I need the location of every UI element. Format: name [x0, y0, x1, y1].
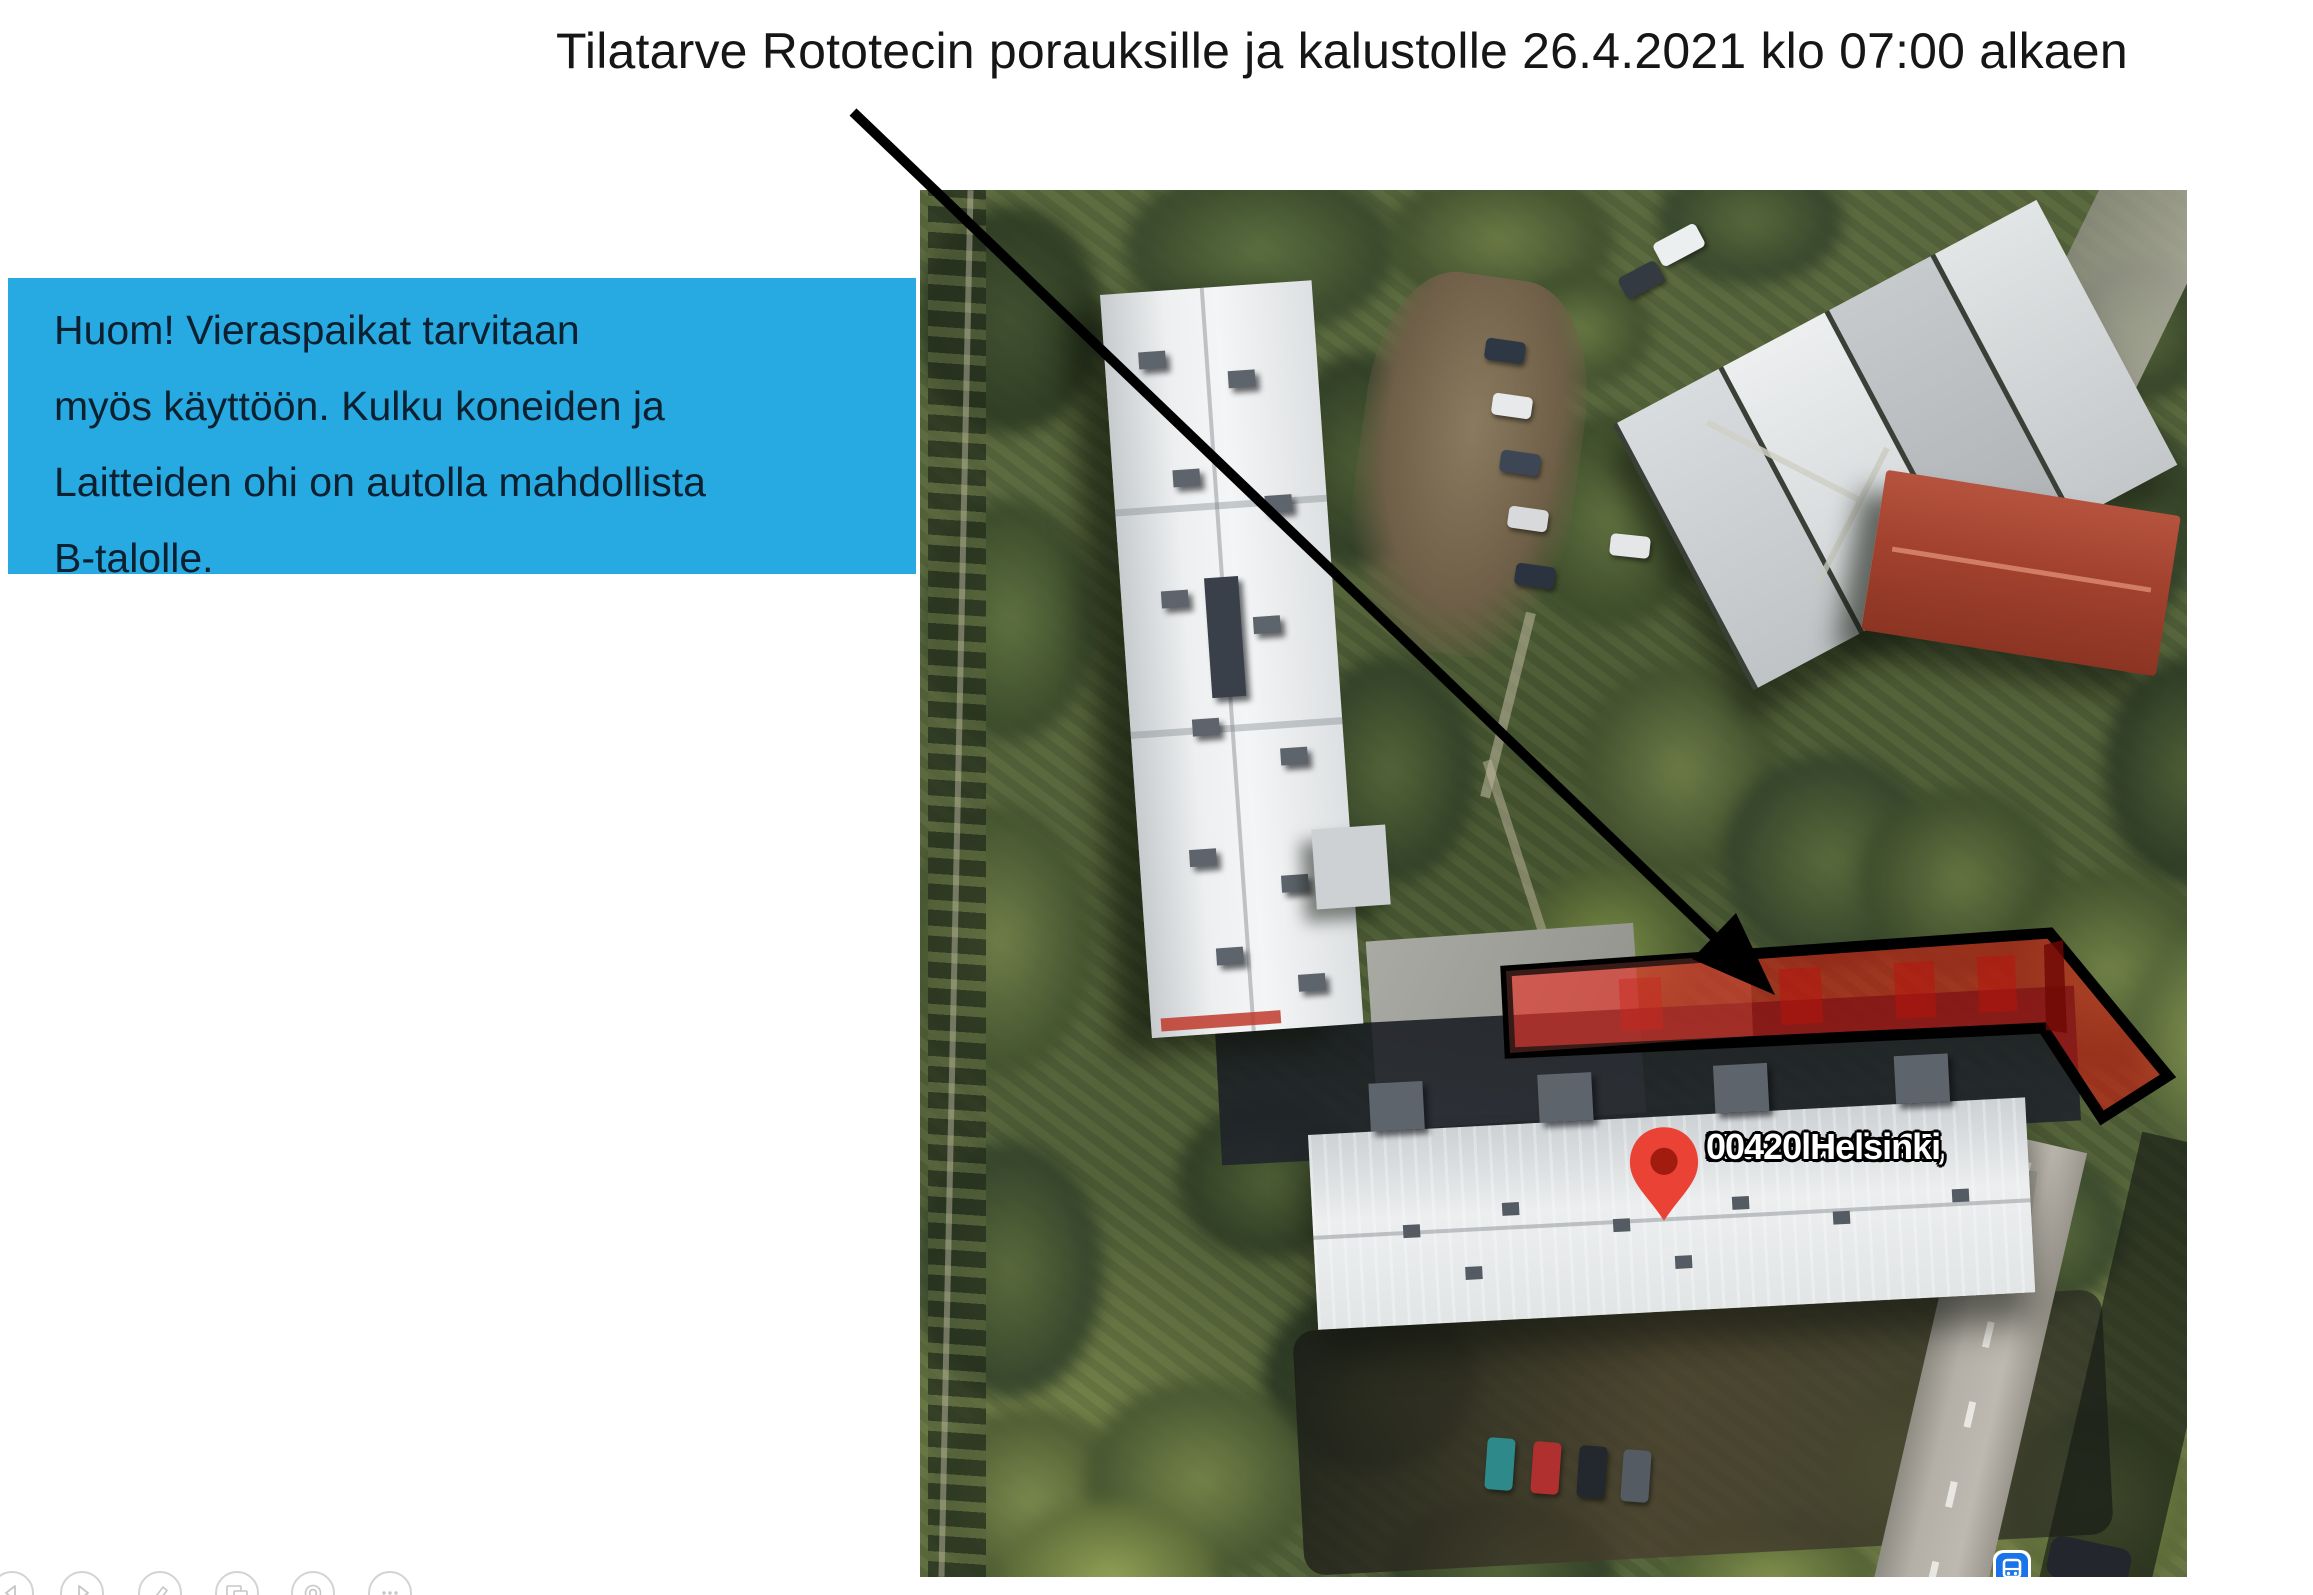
pin-label-line2: 00420 Helsinki	[1706, 1124, 1940, 1170]
slide-canvas: Tilatarve Rototecin porauksille ja kalus…	[0, 0, 2313, 1595]
previous-slide-icon	[0, 1581, 24, 1595]
pen-icon	[148, 1581, 172, 1595]
pen-tools-button[interactable]	[138, 1571, 182, 1595]
next-slide-button[interactable]	[60, 1571, 104, 1595]
note-line: B-talolle.	[54, 520, 906, 596]
display-settings-button[interactable]	[215, 1571, 259, 1595]
highlight-left-light	[1506, 954, 1753, 1053]
note-box: Huom! Vieraspaikat tarvitaan myös käyttö…	[8, 278, 916, 574]
display-settings-icon	[224, 1581, 250, 1595]
note-line: Huom! Vieraspaikat tarvitaan	[54, 292, 906, 368]
next-slide-icon	[70, 1581, 94, 1595]
note-line: myös käyttöön. Kulku koneiden ja	[54, 368, 906, 444]
zoom-icon	[301, 1581, 325, 1595]
bus-stop-icon	[1993, 1550, 2031, 1577]
map-pin-icon	[1627, 1125, 1701, 1223]
more-options-button[interactable]	[368, 1571, 412, 1595]
more-options-icon	[378, 1581, 402, 1595]
highlight-bend-face	[2044, 940, 2067, 1033]
slide-title: Tilatarve Rototecin porauksille ja kalus…	[556, 22, 2128, 80]
note-line: Laitteiden ohi on autolla mahdollista	[54, 444, 906, 520]
highlight-overlay	[920, 190, 2187, 1577]
satellite-map-image: Kaarelantie 97, 00420 Helsinki	[920, 190, 2187, 1577]
zoom-button[interactable]	[291, 1571, 335, 1595]
previous-slide-button[interactable]	[0, 1571, 34, 1595]
